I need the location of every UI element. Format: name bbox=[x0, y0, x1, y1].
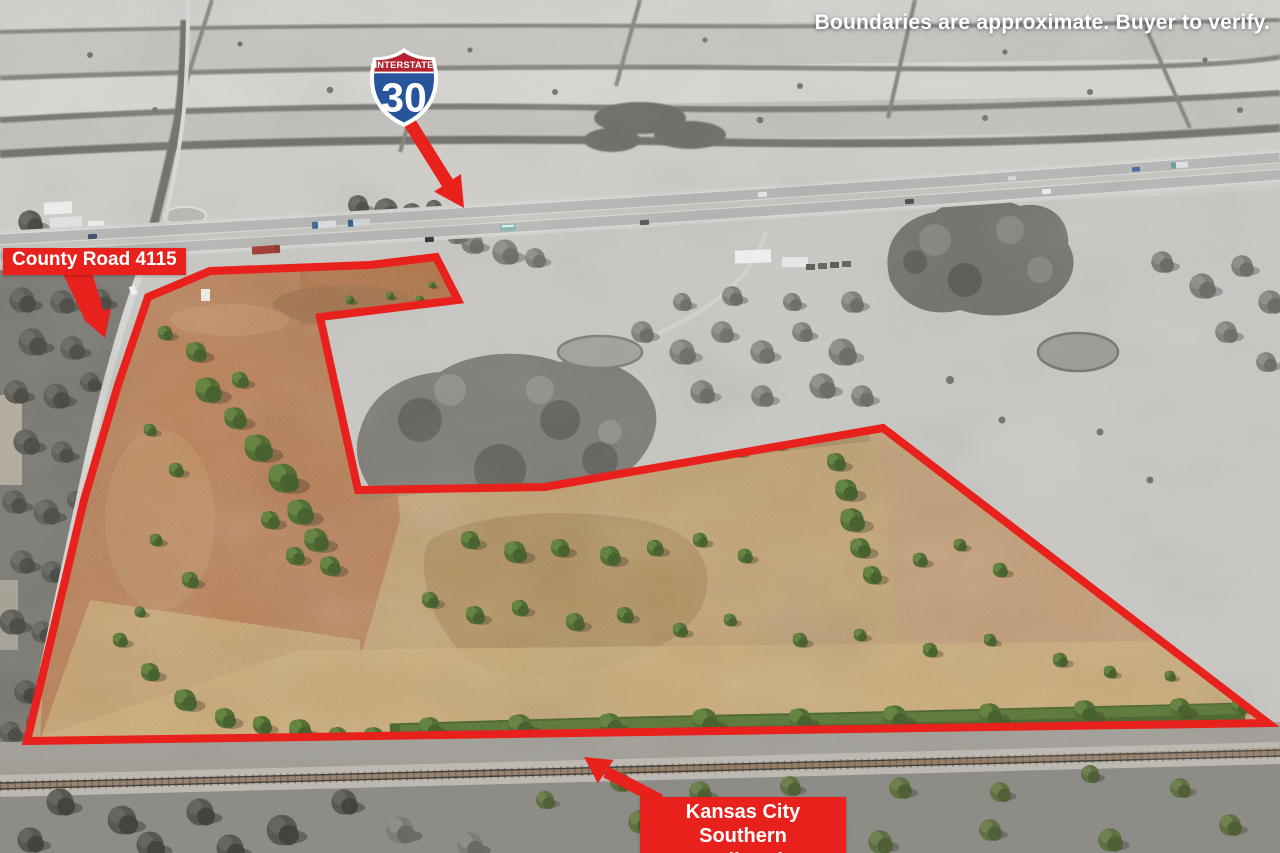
disclaimer-text: Boundaries are approximate. Buyer to ver… bbox=[815, 11, 1270, 35]
shield-interstate-text: INTERSTATE bbox=[375, 60, 434, 70]
railroad-label: Kansas City Southern Railroad bbox=[640, 797, 846, 853]
aerial-scene: INTERSTATE 30 bbox=[0, 0, 1280, 853]
railroad-label-line2: Railroad bbox=[640, 849, 846, 853]
aerial-property-photo: INTERSTATE 30 Boundaries are approximate… bbox=[0, 0, 1280, 853]
shield-route-number: 30 bbox=[381, 75, 427, 121]
county-road-label: County Road 4115 bbox=[3, 248, 186, 275]
railroad-label-line1: Kansas City Southern bbox=[640, 800, 846, 849]
